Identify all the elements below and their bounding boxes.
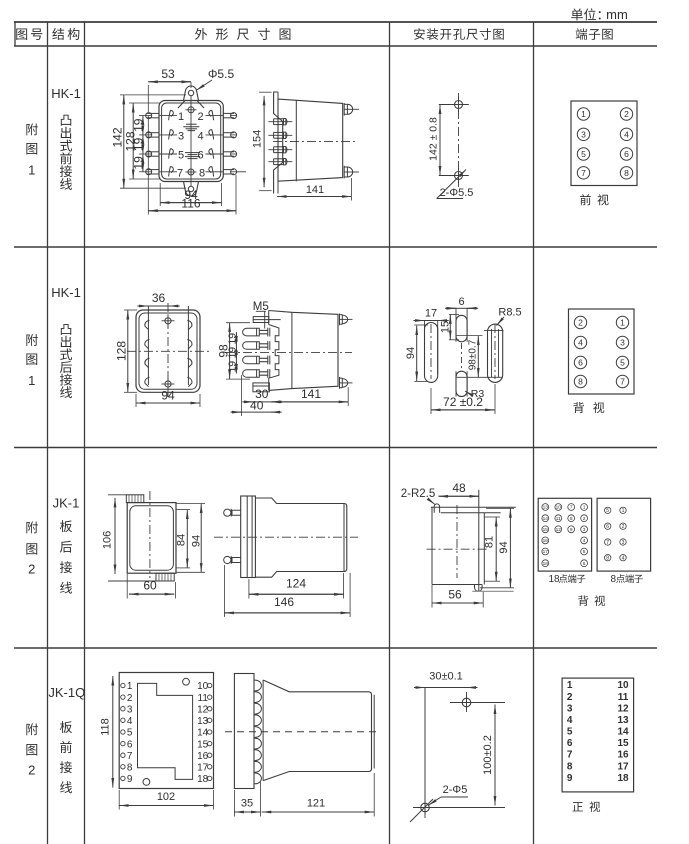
svg-text:9: 9	[570, 527, 573, 533]
svg-text:72 ±0.2: 72 ±0.2	[443, 395, 483, 409]
svg-text:12: 12	[617, 703, 629, 714]
svg-text:4: 4	[583, 538, 586, 544]
svg-text:1: 1	[567, 680, 573, 691]
svg-text:5: 5	[127, 728, 133, 739]
svg-text:40: 40	[250, 399, 264, 413]
svg-text:6: 6	[458, 296, 464, 308]
svg-text:106: 106	[102, 531, 114, 549]
svg-text:7: 7	[567, 750, 573, 761]
svg-text:3: 3	[127, 704, 133, 715]
svg-text:5: 5	[620, 358, 625, 368]
svg-text:19: 19	[227, 347, 239, 359]
svg-text:118: 118	[100, 718, 112, 736]
svg-text:3: 3	[620, 338, 625, 348]
svg-text:16: 16	[617, 750, 629, 761]
svg-text:3: 3	[567, 703, 573, 714]
svg-text:14: 14	[543, 516, 549, 522]
svg-text:3: 3	[622, 540, 625, 546]
svg-text:94: 94	[191, 535, 203, 547]
svg-text:19: 19	[132, 118, 146, 132]
svg-text:6: 6	[567, 738, 573, 749]
svg-text:2-Φ5.5: 2-Φ5.5	[440, 187, 474, 199]
svg-text:2-Φ5: 2-Φ5	[443, 784, 468, 796]
svg-text:1: 1	[581, 109, 586, 119]
svg-text:12: 12	[556, 527, 562, 533]
svg-text:13: 13	[617, 715, 629, 726]
svg-text:10: 10	[556, 505, 562, 511]
svg-text:6: 6	[624, 149, 629, 159]
svg-text:15: 15	[197, 739, 209, 750]
svg-text:18: 18	[543, 561, 549, 567]
svg-text:2-R2.5: 2-R2.5	[401, 488, 436, 500]
svg-text:2: 2	[622, 524, 625, 530]
svg-text:81: 81	[484, 536, 496, 548]
svg-text:3: 3	[581, 129, 586, 139]
svg-text:9: 9	[567, 773, 573, 784]
svg-text:3: 3	[583, 527, 586, 533]
svg-text:2: 2	[197, 111, 203, 123]
svg-text:17: 17	[197, 763, 209, 774]
svg-text:128: 128	[115, 341, 129, 361]
svg-text:10: 10	[197, 681, 209, 692]
svg-text:5: 5	[178, 150, 184, 162]
svg-text:6: 6	[583, 561, 586, 567]
svg-text:Φ5.5: Φ5.5	[208, 67, 235, 81]
svg-text:mm: mm	[606, 7, 628, 22]
svg-text:2: 2	[28, 762, 35, 777]
svg-text:5: 5	[567, 727, 573, 738]
svg-text:84: 84	[176, 534, 188, 546]
svg-text:7: 7	[127, 751, 133, 762]
svg-text:5: 5	[583, 549, 586, 555]
svg-text:2: 2	[624, 109, 629, 119]
svg-text:4: 4	[622, 556, 625, 562]
svg-text:JK-1: JK-1	[53, 496, 80, 511]
svg-text:15: 15	[543, 527, 549, 533]
svg-text:30±0.1: 30±0.1	[429, 671, 463, 683]
svg-text:R8.5: R8.5	[498, 307, 521, 319]
svg-text:18: 18	[197, 774, 209, 785]
svg-text:2: 2	[583, 516, 586, 522]
svg-text:8: 8	[611, 574, 617, 585]
svg-text:19: 19	[132, 156, 146, 170]
svg-text:1: 1	[583, 505, 586, 511]
svg-text:1: 1	[620, 318, 625, 328]
svg-text:53: 53	[161, 67, 175, 81]
svg-text:7: 7	[177, 167, 183, 179]
svg-text:11: 11	[198, 693, 209, 704]
svg-text:121: 121	[307, 798, 325, 810]
svg-text:1: 1	[28, 162, 35, 177]
svg-text:2: 2	[28, 562, 35, 577]
svg-text:4: 4	[197, 130, 203, 142]
svg-text:2: 2	[567, 692, 573, 703]
svg-text:141: 141	[306, 184, 324, 196]
svg-text:102: 102	[157, 791, 175, 803]
svg-text:17: 17	[425, 308, 437, 320]
svg-text:5: 5	[581, 149, 586, 159]
svg-text:HK-1: HK-1	[51, 86, 81, 101]
svg-text:1: 1	[127, 681, 133, 692]
svg-text:1: 1	[622, 508, 625, 514]
svg-text:60: 60	[143, 579, 157, 593]
svg-text:94: 94	[498, 541, 510, 553]
svg-text:7: 7	[570, 505, 573, 511]
svg-text:4: 4	[567, 715, 573, 726]
svg-text:6: 6	[606, 524, 609, 530]
svg-text:6: 6	[578, 358, 583, 368]
svg-text:4: 4	[624, 129, 629, 139]
svg-text:8: 8	[127, 763, 133, 774]
svg-text:17: 17	[617, 761, 629, 772]
svg-text:154: 154	[252, 130, 264, 148]
svg-text:142 ± 0.8: 142 ± 0.8	[428, 117, 440, 161]
svg-text:13: 13	[197, 716, 209, 727]
svg-text:11: 11	[556, 516, 561, 522]
svg-text:8: 8	[570, 516, 573, 522]
svg-text:5: 5	[606, 508, 609, 514]
svg-text:35: 35	[241, 798, 253, 810]
svg-text:36: 36	[152, 291, 166, 305]
svg-text:1: 1	[178, 111, 184, 123]
svg-text:1: 1	[28, 373, 35, 388]
svg-text:48: 48	[452, 481, 466, 495]
svg-text:100±0.2: 100±0.2	[482, 735, 494, 775]
svg-text:116: 116	[181, 197, 200, 211]
svg-text:7: 7	[620, 377, 625, 387]
svg-text:8: 8	[578, 377, 583, 387]
svg-text:HK-1: HK-1	[51, 285, 81, 300]
svg-text:8: 8	[624, 168, 629, 178]
svg-text:10: 10	[617, 680, 629, 691]
svg-text:18: 18	[617, 773, 629, 784]
svg-text:8: 8	[606, 556, 609, 562]
svg-text:JK-1Q: JK-1Q	[48, 685, 85, 700]
svg-text:124: 124	[286, 577, 306, 591]
svg-text:4: 4	[127, 716, 133, 727]
svg-text:19: 19	[132, 137, 146, 151]
svg-text:18: 18	[548, 574, 560, 585]
svg-text:9: 9	[127, 774, 133, 785]
svg-text:7: 7	[606, 540, 609, 546]
svg-text:141: 141	[301, 387, 321, 401]
svg-text:7: 7	[581, 168, 586, 178]
svg-text:14: 14	[617, 727, 629, 738]
svg-text:4: 4	[578, 338, 583, 348]
svg-text:6: 6	[127, 739, 133, 750]
svg-text:16: 16	[543, 538, 549, 544]
svg-text:98±0.7: 98±0.7	[467, 339, 478, 370]
svg-text:14: 14	[197, 728, 209, 739]
svg-text:15: 15	[440, 321, 452, 333]
svg-text:8: 8	[567, 761, 573, 772]
svg-text:56: 56	[448, 588, 462, 602]
svg-text:94: 94	[405, 347, 417, 359]
svg-text:6: 6	[197, 150, 203, 162]
svg-text:12: 12	[197, 704, 209, 715]
svg-text:19: 19	[227, 333, 239, 345]
svg-text:19: 19	[227, 361, 239, 373]
svg-text:3: 3	[178, 130, 184, 142]
svg-text:11: 11	[618, 692, 629, 703]
svg-text:146: 146	[274, 595, 294, 609]
svg-text:8: 8	[199, 167, 205, 179]
svg-text:15: 15	[617, 738, 629, 749]
svg-text:13: 13	[543, 505, 549, 511]
svg-text:2: 2	[578, 318, 583, 328]
svg-text:94: 94	[161, 389, 175, 403]
svg-text:16: 16	[197, 751, 209, 762]
svg-text:142: 142	[111, 127, 125, 147]
svg-text:17: 17	[543, 549, 549, 555]
svg-text:2: 2	[127, 693, 133, 704]
